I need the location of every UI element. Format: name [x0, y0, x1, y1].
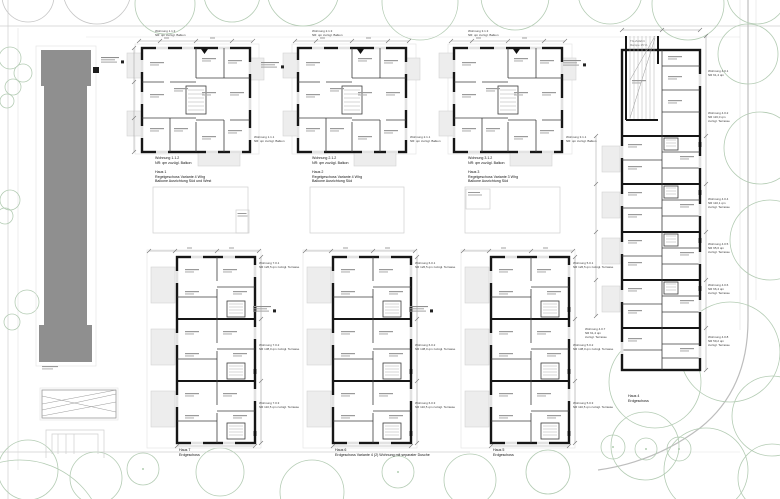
label-wohnung-6-0-1: Wohnung 6.0.1 NR 126,5 qm zuzügl. Terras… [415, 262, 459, 270]
label-haus-1: Wohnung 1.1.2 NR: qm zuzügl. Balkon Haus… [155, 156, 211, 184]
label-wohnung-1-1-3: Wohnung 1.1.3 NR: qm zuzügl. Balkon [155, 30, 186, 38]
label-wohnung-7-0-1: Wohnung 7.0.1 NR 126,5 qm zuzügl. Terras… [259, 262, 303, 270]
haus-4-plan [602, 36, 701, 370]
label-wohnung-4-0-5: Wohnung 4.0.5 NR 95,6 qm zuzügl. Terrass… [708, 243, 756, 255]
haus-7-plan [151, 257, 256, 443]
site-plan-drawing [0, 0, 780, 499]
label-wohnung-5-0-3: Wohnung 5.0.3 NR 110,5 qm zuzügl. Terras… [573, 402, 617, 410]
label-wohnung-3-1-3: Wohnung 3.1.3 NR: qm zuzügl. Balkon [468, 30, 499, 38]
label-haus-5: Haus 5 Erdgeschoss [493, 448, 514, 457]
label-haus-4: Haus 4 Erdgeschoss [628, 394, 649, 403]
label-wohnung-4-0-4: Wohnung 4.0.4 NR 110,1 qm zuzügl. Terras… [708, 198, 756, 210]
courtyard-areas [153, 187, 560, 233]
label-wohnung-4-0-8: Wohnung 4.0.8 NR 59,2 qm zuzügl. Terrass… [708, 336, 756, 348]
haus-2-plan [283, 48, 420, 166]
label-wohnung-4-0-1: Wohnung 4.0.1 NR 61,4 qm [708, 70, 756, 78]
haus-6-plan [307, 257, 412, 443]
label-wohnung-1-1-1: Wohnung 1.1.1 NR: qm zuzügl. Balkon [254, 136, 294, 144]
label-wohnung-2-1-1: Wohnung 2.1.1 NR: qm zuzügl. Balkon [410, 136, 450, 144]
garage-ramp-structure [40, 388, 118, 458]
label-tg-ramp: TG-Zufahrt Rampe 15 % [630, 40, 647, 48]
label-wohnung-4-0-6: Wohnung 4.0.6 NR 66,4 qm zuzügl. Terrass… [708, 284, 756, 296]
level-marker [93, 67, 99, 73]
haus-3-plan [439, 48, 576, 166]
label-wohnung-6-0-3: Wohnung 6.0.3 NR 110,5 qm zuzügl. Terras… [415, 402, 459, 410]
label-wohnung-6-0-2: Wohnung 6.0.2 NR 138,0 qm zuzügl. Terras… [415, 344, 459, 352]
site-plan-canvas: Wohnung 1.1.3 NR: qm zuzügl. Balkon Wohn… [0, 0, 780, 499]
existing-building [39, 50, 99, 369]
label-wohnung-7-0-3: Wohnung 7.0.3 NR 110,5 qm zuzügl. Terras… [259, 402, 303, 410]
label-wohnung-3-1-1: Wohnung 3.1.1 NR: qm zuzügl. Balkon [566, 136, 606, 144]
label-wohnung-5-0-2: Wohnung 5.0.2 NR 138,0 qm zuzügl. Terras… [573, 344, 617, 352]
label-wohnung-2-1-3: Wohnung 2.1.3 NR: qm zuzügl. Balkon [312, 30, 343, 38]
haus-5-plan [465, 257, 570, 443]
haus-1-plan [127, 48, 264, 166]
label-wohnung-4-0-2: Wohnung 4.0.2 NR 116,0 qm zuzügl. Terras… [708, 112, 756, 124]
label-wohnung-5-0-1: Wohnung 5.0.1 NR 126,5 qm zuzügl. Terras… [573, 262, 617, 270]
label-haus-3: Wohnung 3.1.2 NR: qm zuzügl. Balkon Haus… [468, 156, 518, 184]
label-haus-6: Haus 6 Erdgeschoss Variante 4 (2) Wohnun… [335, 448, 515, 457]
label-wohnung-4-0-7: Wohnung 4.0.7 NR 61,4 qm zuzügl. Terrass… [585, 328, 621, 340]
label-haus-7: Haus 7 Erdgeschoss [179, 448, 200, 457]
label-wohnung-7-0-2: Wohnung 7.0.2 NR 138,0 qm zuzügl. Terras… [259, 344, 303, 352]
label-haus-2: Wohnung 2.1.2 NR: qm zuzügl. Balkon Haus… [312, 156, 362, 184]
